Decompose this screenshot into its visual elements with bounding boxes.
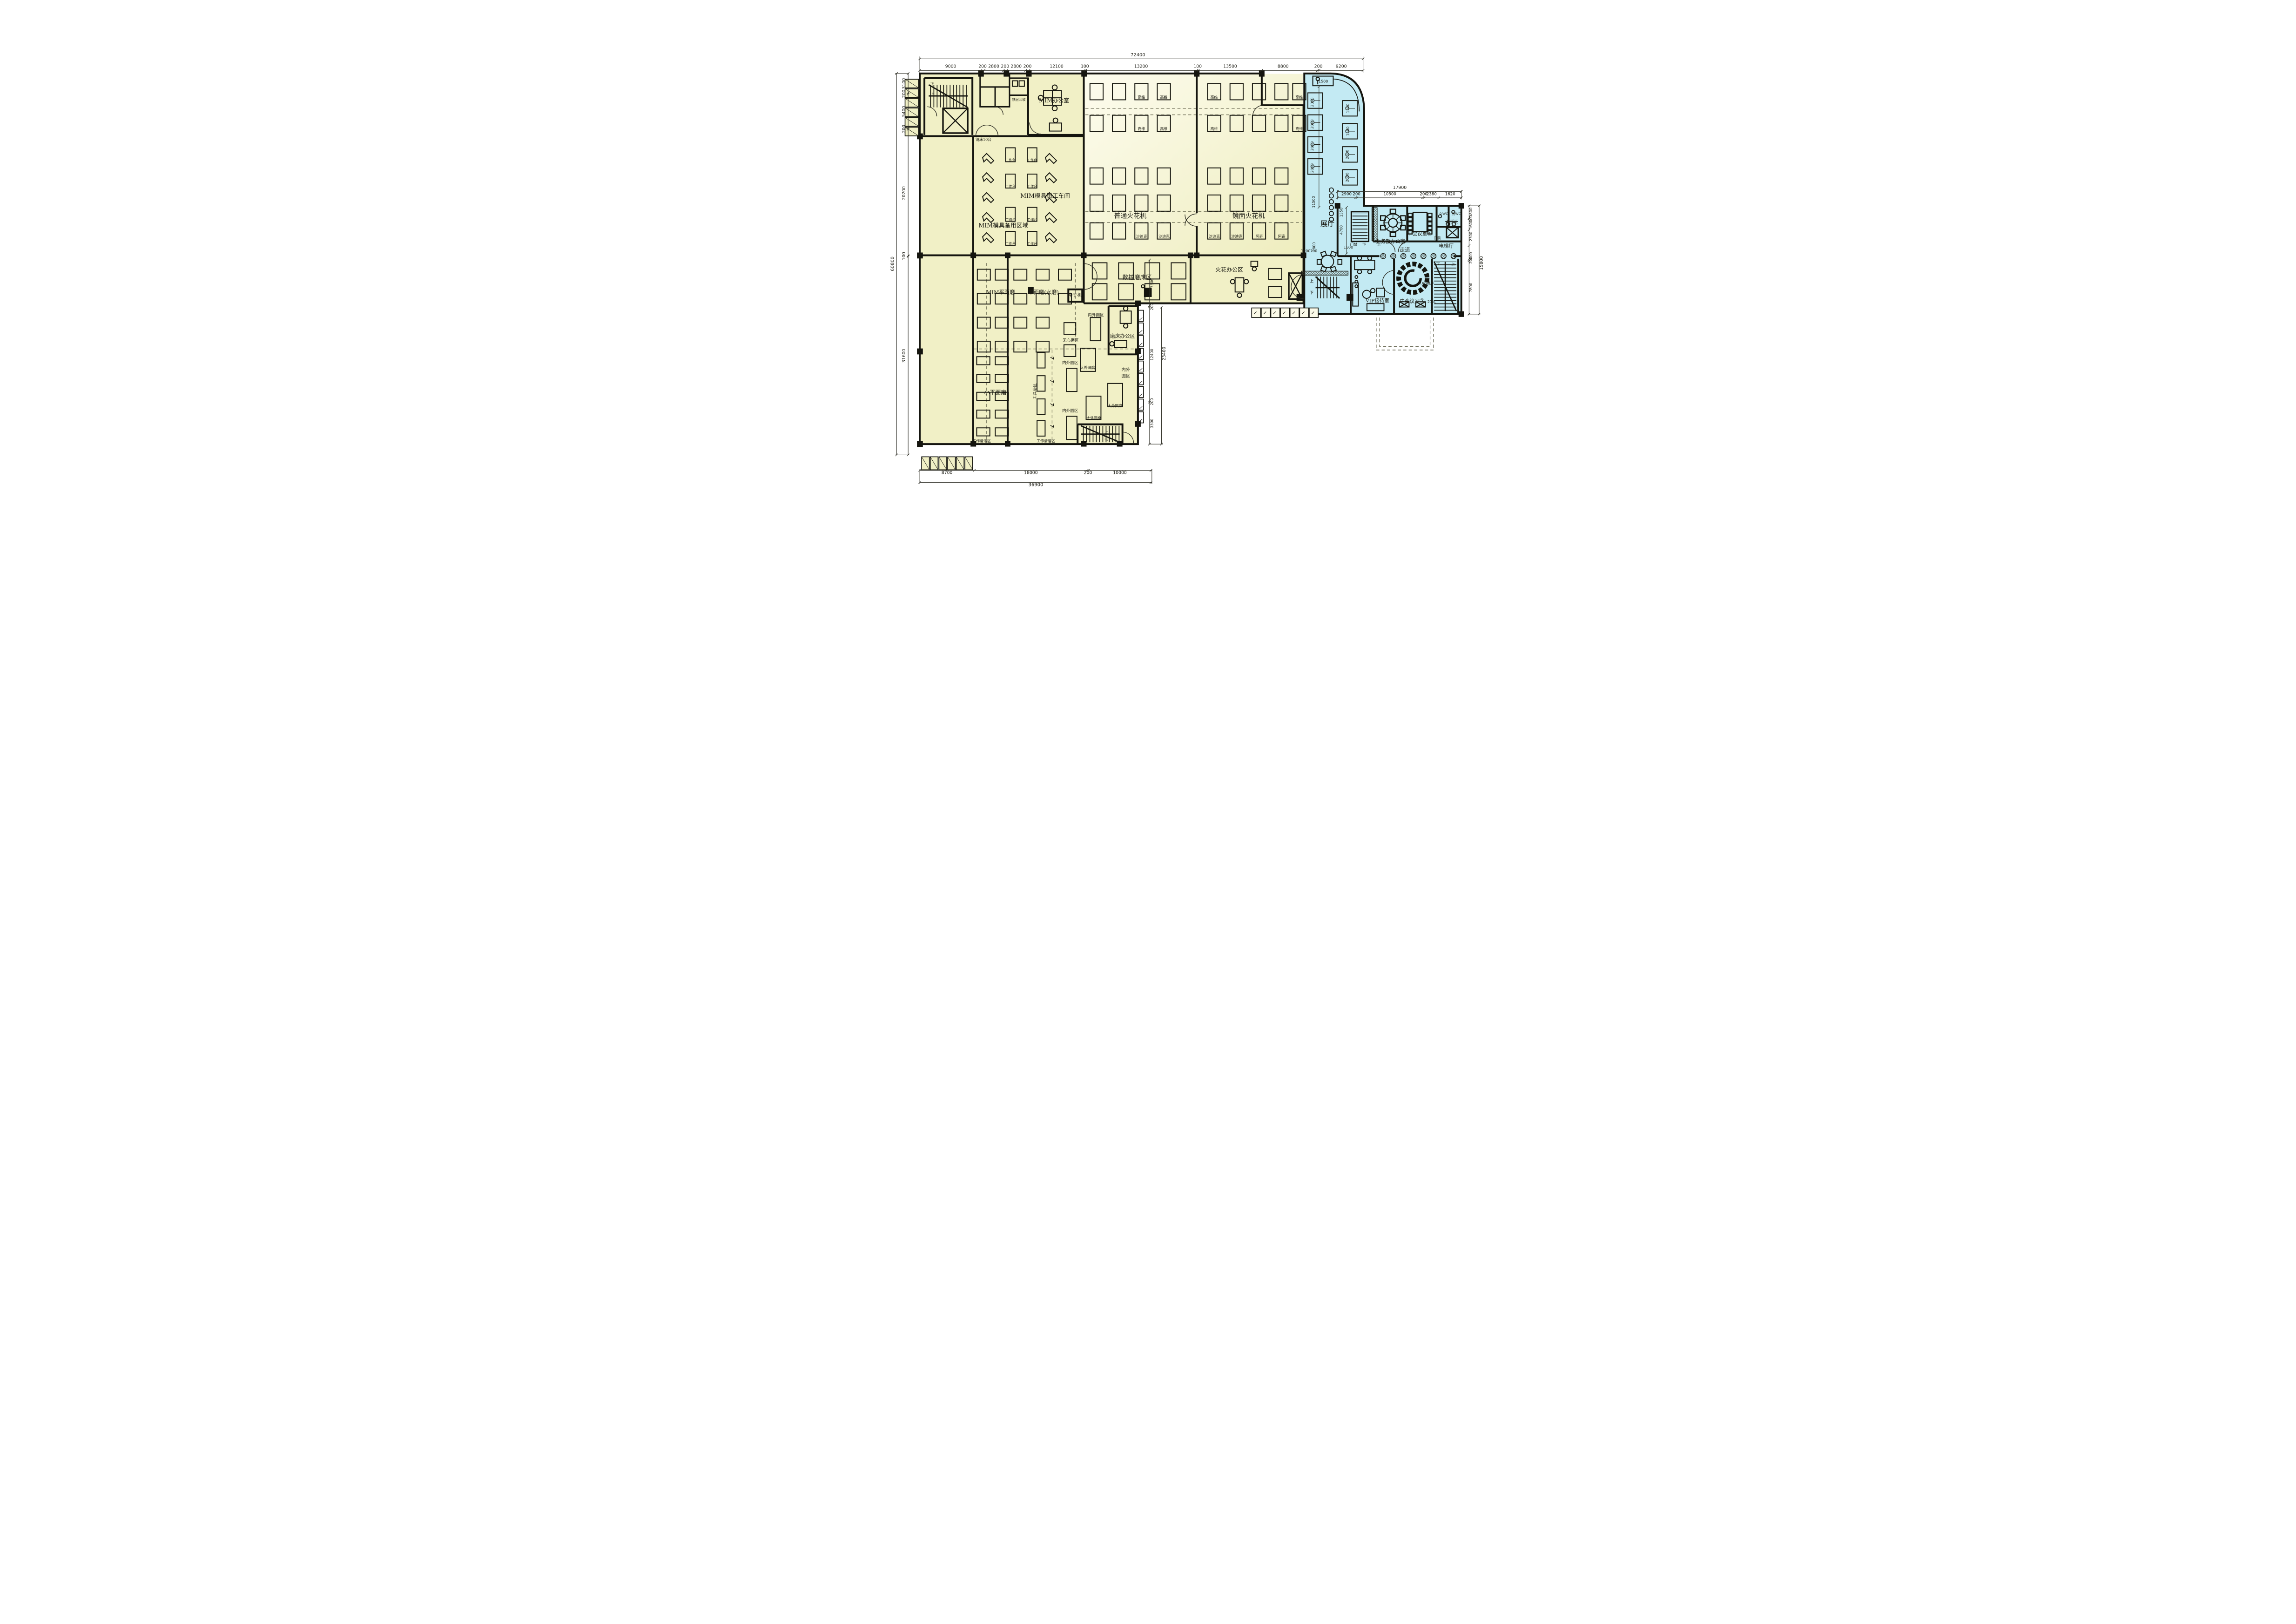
label-bench: 工作台 [1005, 158, 1016, 162]
label-up: 上 [1104, 430, 1108, 435]
plan-dim: 2000 [1310, 163, 1314, 173]
label-b_gaowei: 高维 [1160, 94, 1167, 99]
label-cnc-grind: 数控磨床区 [1122, 274, 1151, 281]
shaft-hatch-office [1372, 208, 1377, 241]
label-down: 下 [1362, 243, 1366, 247]
label-bench: 工作台 [1005, 242, 1016, 246]
canopy-top-left [905, 79, 918, 136]
label-bench: 工作台 [1005, 184, 1016, 189]
label-punch: 冲子机 [1068, 292, 1082, 298]
dim-top: 9200 [1335, 64, 1347, 69]
stair-exhibition [1352, 213, 1367, 240]
dim-top: 100 [1193, 64, 1202, 69]
label-access: 门禁 [1434, 236, 1441, 240]
zone-machine-hall [1084, 74, 1303, 255]
plan-dim: 2000 [1310, 142, 1314, 151]
dim-office-top: 2900 [1341, 192, 1352, 197]
screen-wall-hatch [1301, 271, 1348, 275]
label-inout: 内外圆区 [1062, 408, 1078, 413]
label-exhibition: 展厅 [1320, 220, 1334, 228]
label-inout2a: 内外 [1121, 367, 1130, 372]
plan-dim: 2000 [1345, 150, 1349, 159]
label-bench: 工作台 [1027, 217, 1037, 222]
label-up: 上 [1377, 243, 1380, 247]
label-bench: 工作台 [1005, 217, 1016, 222]
dim-top: 200 [978, 64, 987, 69]
dim-exhibition: 11500 [1312, 196, 1316, 208]
dim-lower-right-total: 23400 [1162, 347, 1167, 361]
dim-top: 8800 [1277, 64, 1288, 69]
dim-office-top: 10500 [1383, 192, 1396, 197]
dim-bottom: 10000 [1113, 471, 1127, 476]
label-edm-office: 火花办公区 [1215, 266, 1243, 273]
dim-top-total: 72400 [1131, 53, 1145, 58]
label-b_gaowei: 高维 [1295, 94, 1303, 99]
label-down: 下 [930, 82, 934, 87]
dim-lower-right: 3300 [1150, 418, 1154, 428]
dim-office-top: 2380 [1426, 192, 1436, 197]
label-up: 上 [930, 92, 934, 97]
dim-lower-right: 7300 [1150, 278, 1154, 288]
label-washroom: 洗手间 [1445, 219, 1458, 224]
label-inout2b: 圆区 [1121, 374, 1130, 379]
label-meeting2_cap: 21人 [1427, 300, 1435, 304]
label-bench: 工作台 [1027, 184, 1037, 189]
label-meeting1: 中会议室① [1407, 230, 1432, 236]
label-b_sodick: 沙迪克 [1136, 234, 1147, 239]
dim-top: 2800 [988, 64, 999, 69]
label-b_agie: 阿奇 [1255, 234, 1263, 239]
dim-top: 13200 [1134, 64, 1148, 69]
dim-exhibition: 1600 [1343, 245, 1353, 249]
dim-top: 200 [1001, 64, 1009, 69]
label-corridor: 走道 [1400, 247, 1410, 253]
label-bench: 工作台 [1027, 158, 1037, 162]
label-bench: 工作台 [1027, 242, 1037, 246]
label-inout: 内外圆区 [1088, 312, 1104, 318]
label-down: 下 [1104, 438, 1108, 443]
label-big_outer: 大外圆磨 [1107, 403, 1122, 408]
dim-left: 31600 [901, 349, 906, 363]
dim-office-top: 200 [1420, 192, 1427, 197]
dim-left-total: 60800 [890, 256, 895, 271]
dim-office-right: 7800 [1468, 283, 1473, 292]
dim-top: 100 [1080, 64, 1089, 69]
label-up: 上 [1451, 262, 1455, 267]
dim-top: 12100 [1050, 64, 1064, 69]
label-mim-surface: MIM平面磨 [986, 290, 1015, 296]
dim-exhibition: 1350 [1339, 208, 1343, 217]
drawing-sheet: MIM办公室 MIM模具钳工车间 MIM模具备用区域 普通火花机 镜面火花机 数… [767, 0, 1530, 540]
dim-left: 100 [901, 252, 906, 260]
dim-office-top: 200 [1353, 192, 1360, 197]
label-wc_f: 女WC [1439, 211, 1448, 216]
label-b_sodick: 沙迪克 [1231, 234, 1242, 239]
label-b_gaowei: 高维 [1138, 94, 1145, 99]
label-water-surface: 平面磨(水磨) [1028, 290, 1058, 296]
label-tool_grind: 工具磨区 [1032, 383, 1037, 399]
dim-top: 200 [1314, 64, 1322, 69]
plan-dim: 1500 [1346, 127, 1350, 136]
label-grind-office: 磨床办公区 [1110, 333, 1135, 339]
dim-left: 200 [901, 125, 906, 133]
label-b_gaowei: 高维 [1160, 127, 1167, 131]
label-mim-office: MIM办公室 [1039, 97, 1069, 104]
label-b_sodick: 沙迪克 [1209, 234, 1220, 239]
dim-bottom: 18000 [1024, 471, 1038, 476]
dim-top: 13500 [1223, 64, 1237, 69]
label-down: 下 [1309, 291, 1313, 296]
dim-office-right-total: 15800 [1479, 256, 1484, 270]
dim-lower-right: 200 [1150, 398, 1154, 405]
dim-office-right: 200 [1468, 257, 1473, 264]
dim-bottom-total: 36900 [1028, 483, 1043, 488]
plan-dim: 1500 [1319, 80, 1328, 84]
plan-dim: 2000 [1345, 173, 1349, 182]
label-centerless: 无心磨区 [1063, 338, 1079, 343]
label-lift-hall: 电梯厅 [1439, 243, 1454, 249]
label-mill: 铣床10台 [976, 137, 991, 142]
dim-bottom: 8700 [941, 471, 952, 476]
plan-dim: 2000 [1310, 97, 1314, 107]
label-b_agie: 阿奇 [1278, 234, 1285, 239]
dim-top: 9000 [945, 64, 956, 69]
label-wc_m: 男WC [1452, 211, 1461, 216]
label-led: LED拼屏 [1420, 281, 1434, 285]
dim-office-right: 2300 [1468, 232, 1473, 241]
dim-left: 5400 [901, 106, 906, 117]
dim-lower-right: 12400 [1150, 349, 1154, 360]
label-vip: VIP接待室 [1365, 298, 1389, 304]
label-fitter-shop: MIM模具钳工车间 [1020, 192, 1070, 199]
dim-top: 200 [1023, 64, 1031, 69]
label-inout: 内外圆区 [1062, 360, 1078, 365]
plan-dim: 1500 [1346, 104, 1350, 113]
dim-office-top: 1620 [1445, 192, 1455, 197]
dim-left: 20200 [901, 186, 906, 200]
label-big_outer: 大外圆磨 [1080, 365, 1095, 370]
label-meeting2: 中会议室② [1400, 298, 1425, 304]
dim-top: 2800 [1010, 64, 1022, 69]
glass-canopy-south [1252, 308, 1318, 318]
label-b_gaowei: 高维 [1210, 94, 1218, 99]
label-big_outer: 大外圆磨 [1086, 416, 1101, 420]
floor-plan-canvas: MIM办公室 MIM模具钳工车间 MIM模具备用区域 普通火花机 镜面火花机 数… [767, 0, 1530, 540]
label-clean: 工作清洁区 [972, 438, 991, 443]
dim-exhibition: 4700 [1339, 225, 1343, 235]
label-scrap: 铁屑回收 [1012, 98, 1026, 102]
dim-office-right: 1600 [1468, 220, 1473, 229]
label-down: 下 [1436, 263, 1440, 267]
label-b_gaowei: 高维 [1210, 127, 1218, 131]
plan-dim: 2000 [1310, 119, 1314, 128]
dim-exhibition: 1200 [1301, 249, 1310, 253]
dim-bottom: 200 [1084, 471, 1092, 476]
label-spare-area: MIM模具备用区域 [978, 222, 1028, 229]
dim-exhibition: 700 [1310, 249, 1317, 253]
label-b_gaowei: 高维 [1138, 127, 1145, 131]
label-clean: 工作清洁区 [1037, 438, 1055, 443]
dim-left: 3100 [901, 78, 906, 89]
dim-lower-right: 200 [1150, 303, 1154, 310]
label-edm-normal: 普通火花机 [1114, 213, 1146, 220]
canopy-bottom-left [922, 457, 973, 470]
dim-office-top-total: 17900 [1393, 185, 1407, 190]
label-up: 上 [1309, 278, 1313, 283]
label-b_gaowei: 高维 [1295, 127, 1303, 131]
label-b_sodick: 沙迪克 [1158, 234, 1170, 239]
label-small-surface: 小平面磨 [984, 389, 1006, 396]
dim-left: 200 [901, 90, 906, 98]
label-edm-mirror: 镜面火花机 [1232, 213, 1265, 220]
